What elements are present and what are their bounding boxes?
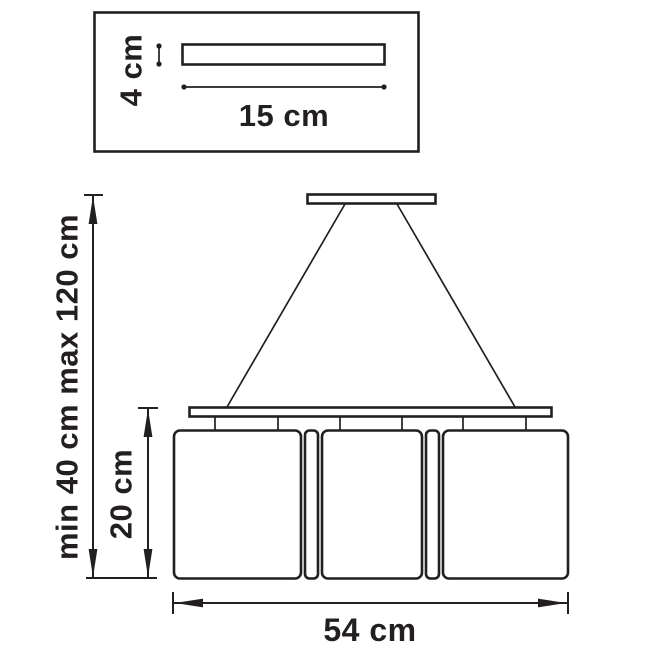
ceiling-plate: [308, 195, 436, 204]
dimension-dot: [156, 43, 161, 48]
canopy-profile: [183, 45, 385, 65]
shade-height-dimension: 20 cm: [104, 408, 159, 578]
fixture-width-dimension: 54 cm: [173, 592, 568, 648]
suspension-cable-left: [227, 204, 345, 407]
arrow-down-icon: [89, 549, 98, 577]
shade-divider-strip: [426, 431, 439, 579]
arrow-up-icon: [89, 196, 98, 224]
dimension-dot: [181, 84, 186, 89]
arrow-right-icon: [538, 599, 566, 608]
dimension-drawing: 4 cm 15 cm: [0, 0, 650, 650]
shade-right: [443, 431, 568, 579]
canopy-detail-panel: 4 cm 15 cm: [95, 13, 419, 152]
shade-middle: [322, 431, 422, 579]
shade-height-label: 20 cm: [104, 449, 139, 539]
dimension-dot: [156, 61, 161, 66]
frame-bar: [190, 408, 552, 417]
pendant-fixture: [174, 195, 568, 579]
shade-divider-strip: [305, 431, 318, 579]
suspension-range-label: min 40 cm max 120 cm: [50, 214, 85, 560]
fixture-width-label: 54 cm: [323, 612, 416, 648]
shade-left: [174, 431, 301, 579]
arrow-left-icon: [175, 599, 203, 608]
canopy-height-label: 4 cm: [114, 34, 149, 107]
suspension-cable-right: [397, 204, 515, 407]
dimension-dot: [381, 84, 386, 89]
pendant-dimension-diagram: 4 cm 15 cm: [0, 0, 650, 650]
lamp-shades: [174, 431, 568, 579]
canopy-width-label: 15 cm: [239, 98, 329, 133]
arrow-up-icon: [144, 409, 153, 437]
arrow-down-icon: [144, 549, 153, 577]
shade-connector-posts: [215, 416, 526, 431]
